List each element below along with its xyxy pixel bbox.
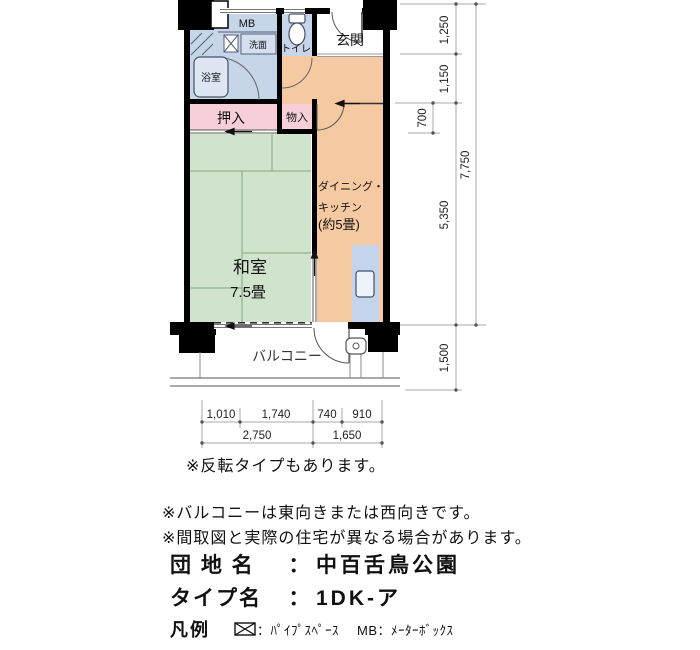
dim-910: 910	[352, 409, 371, 421]
label-japanese-room: 和室	[233, 258, 267, 277]
dim-700: 700	[417, 108, 429, 127]
estate-name: 中百舌鳥公園	[316, 549, 460, 579]
entrance-step	[317, 54, 383, 57]
type-name: 1DK-ア	[316, 582, 401, 612]
exterior-notch	[211, 1, 228, 28]
balcony-door-opening	[312, 322, 348, 329]
toilet-bowl	[289, 23, 305, 45]
label-dk-3: (約5畳)	[318, 217, 360, 232]
legend-meter-box: MB：ﾒｰﾀｰﾎﾞｯｸｽ	[357, 620, 454, 639]
dim-5350: 5,350	[439, 201, 451, 230]
mb-door-opening	[220, 8, 276, 14]
dim-1500: 1,500	[439, 344, 451, 373]
balcony-rail	[170, 378, 400, 386]
legend-pipe-space: ：ﾊﾟｲﾌﾟｽﾍﾟｰｽ	[234, 620, 339, 639]
dim-1250: 1,250	[439, 16, 451, 45]
label-balcony: バルコニー	[252, 348, 322, 364]
note-reverse-type: ※反転タイプもあります。	[186, 452, 386, 476]
estate-label: 団 地 名	[170, 549, 282, 579]
dim-1740: 1,740	[262, 409, 291, 421]
toilet-tank	[289, 14, 305, 23]
dim-740: 740	[317, 409, 336, 421]
floorplan-drawing: MB 洗面 浴室 トイレ 玄関 押入 物入 和室 7.5畳 ダイニング・ キッチ…	[0, 0, 700, 460]
label-dk-1: ダイニング・	[318, 179, 384, 193]
legend-pipe-space-label: ：ﾊﾟｲﾌﾟｽﾍﾟｰｽ	[257, 620, 339, 639]
entrance-opening	[330, 8, 362, 14]
type-separator: ：	[282, 582, 316, 612]
floorplan-page: MB 洗面 浴室 トイレ 玄関 押入 物入 和室 7.5畳 ダイニング・ キッチ…	[0, 0, 700, 650]
estate-name-row: 団 地 名 ： 中百舌鳥公園	[170, 549, 460, 579]
estate-separator: ：	[282, 549, 316, 579]
pipe-space-icon	[234, 622, 256, 636]
dim-1650: 1,650	[333, 430, 362, 442]
toilet-window	[284, 8, 305, 14]
balcony-partition-pivot	[353, 343, 359, 349]
dim-1010: 1,010	[207, 409, 236, 421]
room-hall	[282, 56, 383, 104]
label-bathroom: 浴室	[201, 71, 221, 84]
label-toilet: トイレ	[281, 44, 311, 55]
kitchen-sink	[356, 271, 374, 297]
label-mb: MB	[239, 18, 256, 30]
type-label: タイプ名	[170, 582, 282, 612]
label-dk-2: キッチン	[318, 201, 362, 214]
type-name-row: タイプ名 ： 1DK-ア	[170, 582, 401, 612]
pipe-space-box	[224, 35, 238, 52]
dim-7750: 7,750	[460, 151, 472, 180]
label-japanese-room-size: 7.5畳	[230, 284, 266, 301]
dim-1150: 1,150	[439, 65, 451, 94]
note-disclaimer: ※間取図と実際の住宅が異なる場合があります。	[162, 524, 532, 548]
label-closet: 押入	[217, 110, 245, 126]
legend-title: 凡例	[170, 616, 210, 642]
note-balcony-facing: ※バルコニーは東向きまたは西向きです。	[162, 499, 481, 523]
label-storage: 物入	[286, 110, 308, 124]
dim-2750: 2,750	[243, 430, 272, 442]
label-entrance: 玄関	[336, 32, 364, 48]
label-washstand: 洗面	[249, 39, 267, 50]
legend: 凡例 ：ﾊﾟｲﾌﾟｽﾍﾟｰｽ MB：ﾒｰﾀｰﾎﾞｯｸｽ	[170, 616, 454, 642]
